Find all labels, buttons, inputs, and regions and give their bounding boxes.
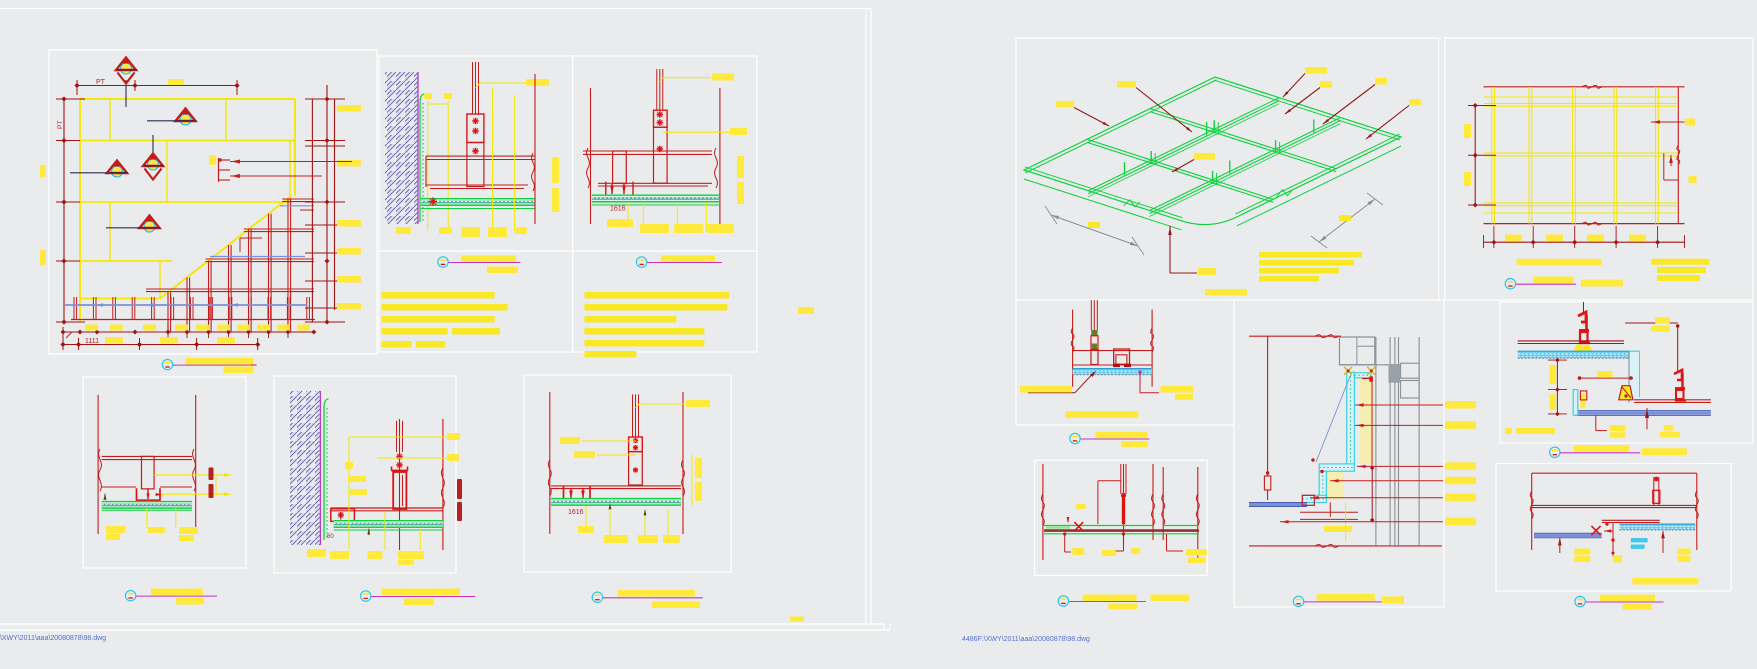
svg-text:PT: PT <box>57 121 64 129</box>
svg-text:1616: 1616 <box>610 206 626 213</box>
svg-text:4486F:\XWY\2011\aaa\20080878\9: 4486F:\XWY\2011\aaa\20080878\98.dwg <box>962 636 1090 643</box>
svg-text::\XWY\2011\aaa\20080878\98.dwg: :\XWY\2011\aaa\20080878\98.dwg <box>0 635 106 642</box>
svg-text:60: 60 <box>327 534 334 540</box>
svg-text:1616: 1616 <box>568 509 584 516</box>
svg-text:1111: 1111 <box>85 338 99 345</box>
svg-text:PT: PT <box>96 79 106 86</box>
